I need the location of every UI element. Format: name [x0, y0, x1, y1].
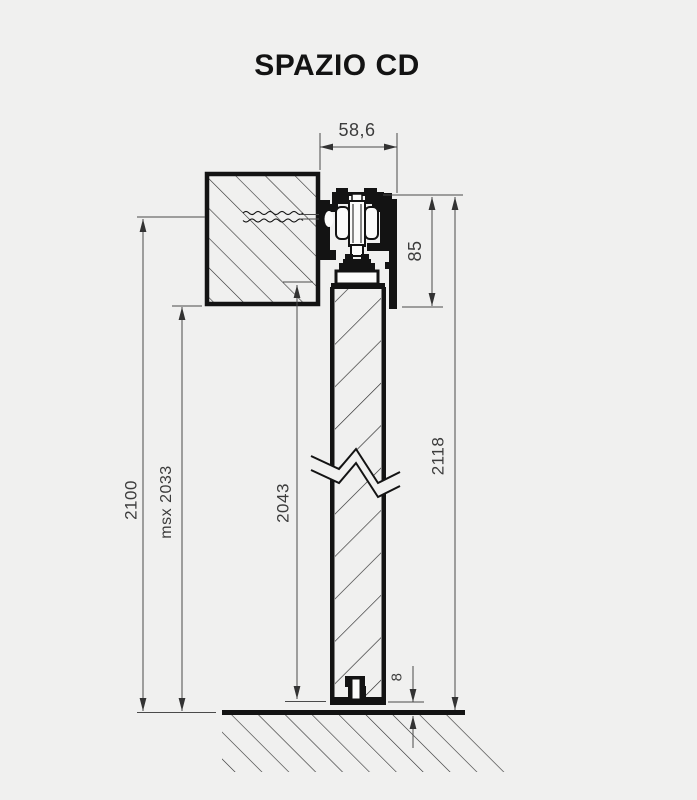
- dim-label-overall-height: 2118: [430, 437, 447, 476]
- dim-label-left-height: 2100: [123, 480, 140, 520]
- wall-section: [207, 174, 322, 304]
- dim-label-max-passage: msx 2033: [159, 465, 175, 538]
- dimension-left-height: [137, 217, 216, 713]
- floor-section: [222, 710, 523, 772]
- door-panel: [311, 283, 400, 705]
- dim-label-floor-gap: 8: [390, 673, 405, 682]
- dimension-max-passage: [172, 306, 202, 711]
- technical-drawing-page: SPAZIO CD 58,6 85 2118 2100 msx 2033 204…: [0, 0, 697, 800]
- dim-label-track-width: 58,6: [338, 121, 375, 139]
- dim-label-track-height: 85: [406, 240, 424, 261]
- roller-carriage: [336, 194, 378, 284]
- dim-label-door-height: 2043: [275, 483, 292, 523]
- dimension-track-width: [320, 133, 397, 193]
- dimension-overall-height: [452, 197, 459, 710]
- diagram-title: SPAZIO CD: [254, 49, 420, 83]
